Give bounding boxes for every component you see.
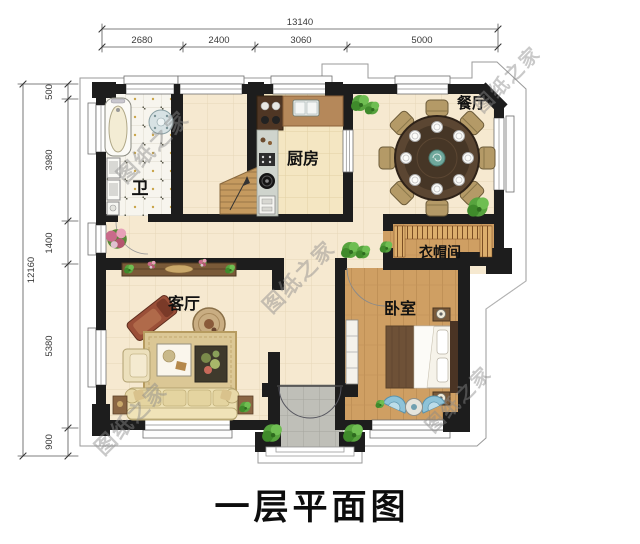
label-living: 客厅 [168,294,200,313]
dim-left-seg-1: 3980 [44,149,55,170]
dim-top-seg-2: 3060 [290,35,311,46]
dimension-left: 12160 500 3980 1400 5380 900 [18,81,78,459]
armchair [123,349,150,382]
dim-left-seg-4: 900 [44,434,55,450]
floor-plan-page: 13140 2680 2400 3060 5000 12160 500 3980… [0,0,640,544]
dim-top-seg-3: 5000 [411,35,432,46]
bathtub [105,98,131,156]
label-bedroom: 卧室 [384,299,416,318]
label-kitchen: 厨房 [287,149,319,168]
tv-cabinet [122,263,236,276]
dim-left-total: 12160 [26,257,37,283]
floral-ottoman [195,346,227,382]
dim-left-seg-0: 500 [44,84,55,100]
dimension-top: 13140 2680 2400 3060 5000 [99,17,501,52]
dim-left-seg-3: 5380 [44,335,55,356]
page-title: 一层平面图 [214,488,409,527]
dim-top-total: 13140 [287,17,313,28]
wardrobe [346,320,358,384]
porch-steps [266,447,354,456]
dim-top-seg-0: 2680 [131,35,152,46]
kitchen-pass-window [343,130,353,172]
dim-left-seg-2: 1400 [44,232,55,253]
headboard [450,321,458,393]
dim-top-seg-1: 2400 [208,35,229,46]
floor-plan-svg: 13140 2680 2400 3060 5000 12160 500 3980… [0,0,640,544]
coffee-table [157,344,191,376]
label-cloakroom: 衣帽间 [419,244,461,260]
floor-porch [277,385,343,447]
